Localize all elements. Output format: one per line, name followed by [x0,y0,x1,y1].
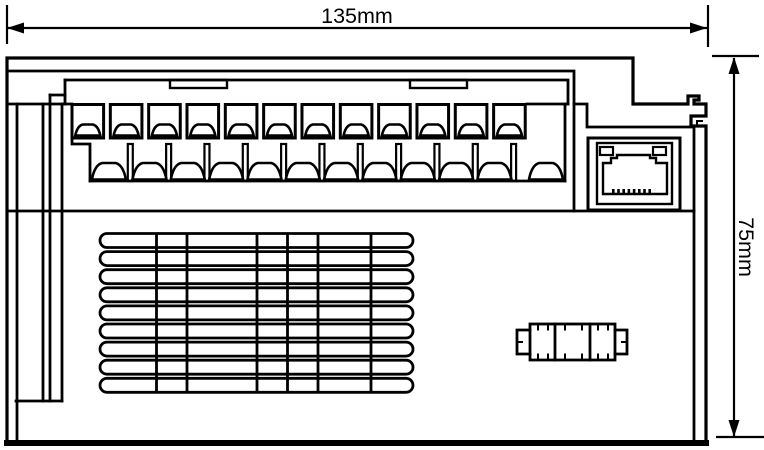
terminal-block [65,80,568,181]
arrow-left-icon [7,23,24,34]
panel-notch-left [170,80,227,88]
terminal-clamp-opening [229,125,254,136]
ethernet-port [588,138,680,210]
rj45-pin [628,189,631,194]
terminal-clamp-opening [344,125,369,136]
terminal-clamp-opening [152,125,177,136]
terminal-clamp-opening [362,163,396,180]
terminal-clamp-opening [439,163,473,180]
rj45-pin [612,189,615,194]
terminal-clamp-opening [247,163,281,180]
height-dimension-label: 75mm [734,217,758,277]
expansion-connector [517,324,627,360]
terminal-clamp-opening [209,163,243,180]
terminal-clamp-opening [114,125,139,136]
technical-drawing-canvas: 135mm 75mm [0,0,764,450]
terminal-clamp-opening [497,125,522,136]
terminal-clamp-opening [75,125,100,136]
terminal-clamp-opening [382,125,407,136]
terminal-clamp-opening [305,125,330,136]
rj45-corner-tab-left [600,147,613,155]
panel-notch-right [410,80,467,88]
terminal-clamp-opening [267,125,292,136]
device-dimension-drawing: 135mm 75mm [0,0,764,450]
terminal-clamp-opening [529,163,563,180]
rj45-pin [638,189,641,194]
left-mounting-flange [16,80,65,441]
terminal-clamp-opening [190,125,215,136]
width-dimension-label: 135mm [321,4,393,28]
arrow-right-icon [690,23,707,34]
terminal-clamp-opening [459,125,484,136]
rj45-pin [648,189,651,194]
rj45-pin [643,189,646,194]
terminal-row-bottom [92,144,563,181]
enclosure-inner-contour [7,71,574,211]
terminal-clamp-opening [92,163,126,180]
terminal-clamp-opening [324,163,358,180]
terminal-clamp-opening [286,163,320,180]
arrow-down-icon [729,420,740,437]
terminal-clamp-opening [401,163,435,180]
rj45-pin [622,189,625,194]
terminal-clamp-opening [171,163,205,180]
terminal-panel-top [65,80,568,104]
arrow-up-icon [729,57,740,74]
rj45-corner-tab-right [653,147,666,155]
connector-tick-marks [517,324,627,360]
rj45-jack-opening [603,155,667,194]
vent-grille [100,234,413,393]
terminal-row-top [72,105,525,139]
rj45-pin [633,189,636,194]
terminal-clamp-opening [477,163,511,180]
terminal-row2-left-step [72,137,90,181]
connector-body [530,324,615,360]
terminal-clamp-opening [132,163,166,180]
terminal-clamp-opening [420,125,445,136]
rj45-pin [617,189,620,194]
